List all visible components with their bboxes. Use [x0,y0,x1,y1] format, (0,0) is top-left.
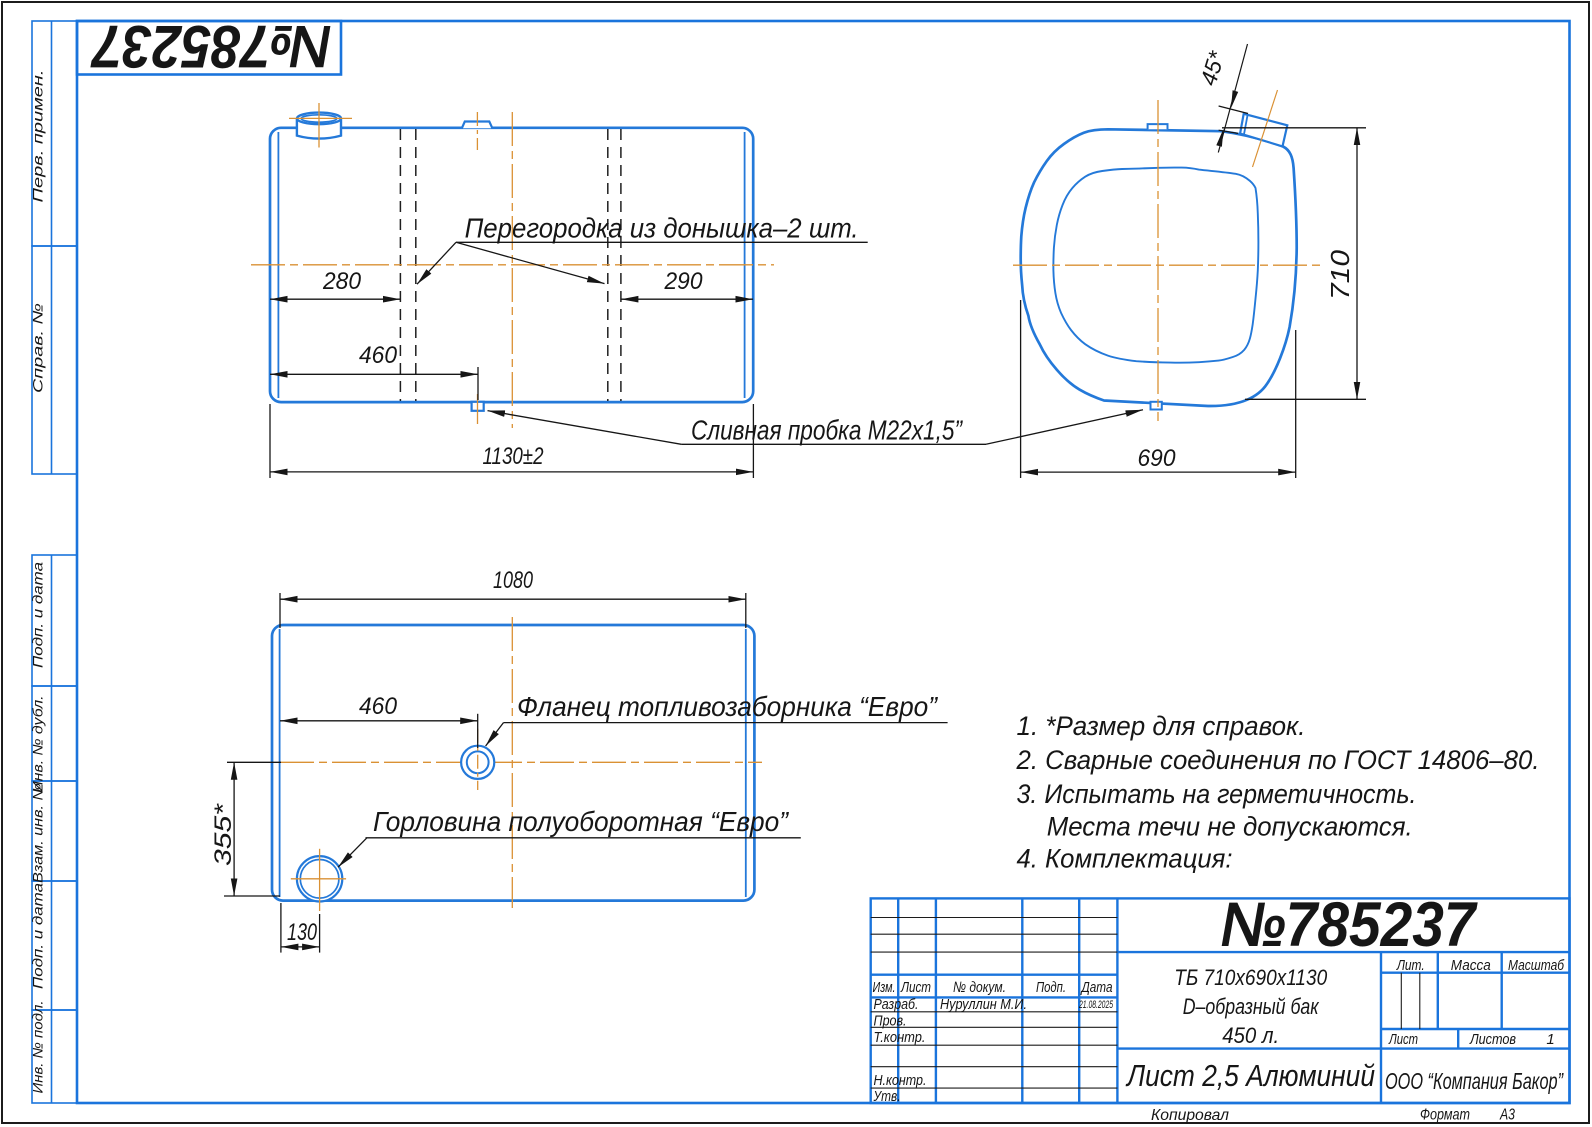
svg-text:Подп. и дата: Подп. и дата [30,883,46,989]
svg-text:21.08.2025: 21.08.2025 [1078,999,1113,1011]
svg-text:Перегородка из донышка–2 шт.: Перегородка из донышка–2 шт. [465,213,859,244]
svg-text:355*: 355* [210,803,237,866]
svg-text:Лист: Лист [900,979,931,996]
svg-text:Т.контр.: Т.контр. [874,1029,926,1046]
svg-text:Подп. и дата: Подп. и дата [30,562,46,668]
svg-text:690: 690 [1138,445,1177,472]
svg-text:130: 130 [287,919,317,946]
svg-text:Дата: Дата [1080,979,1113,996]
svg-text:№785237: №785237 [1221,890,1479,960]
svg-text:1: 1 [1546,1031,1554,1048]
svg-text:Сливная пробка М22х1,5”: Сливная пробка М22х1,5” [691,415,963,446]
svg-text:3. Испытать на герметичность.: 3. Испытать на герметичность. [1017,779,1417,809]
svg-text:Подп.: Подп. [1036,979,1066,996]
svg-text:290: 290 [664,268,704,295]
svg-text:№785237: №785237 [90,13,331,80]
svg-text:А3: А3 [1499,1107,1515,1124]
svg-text:Разраб.: Разраб. [874,996,919,1013]
svg-text:460: 460 [359,693,398,720]
svg-text:Взам. инв. №: Взам. инв. № [30,783,46,883]
svg-text:Пров.: Пров. [874,1013,907,1030]
svg-text:1080: 1080 [493,567,533,594]
svg-text:№ докум.: № докум. [953,979,1006,996]
svg-text:ООО “Компания Бакор”: ООО “Компания Бакор” [1385,1068,1564,1094]
svg-text:Нуруллин М.И.: Нуруллин М.И. [940,996,1027,1013]
svg-text:Фланец топливозаборника “Евро”: Фланец топливозаборника “Евро” [517,691,939,722]
svg-text:Н.контр.: Н.контр. [874,1072,927,1089]
svg-text:Инв. № дубл.: Инв. № дубл. [30,696,46,793]
svg-text:1. *Размер для справок.: 1. *Размер для справок. [1017,711,1306,741]
svg-text:710: 710 [1325,249,1355,300]
svg-text:2. Сварные соединения по ГОСТ: 2. Сварные соединения по ГОСТ 14806–80. [1016,745,1540,775]
svg-text:Справ. №: Справ. № [30,303,46,393]
svg-text:Горловина полуоборотная “Евро”: Горловина полуоборотная “Евро” [373,806,790,837]
svg-text:Лист 2,5 Алюминий: Лист 2,5 Алюминий [1125,1058,1375,1093]
svg-text:Формат: Формат [1420,1107,1470,1124]
svg-text:Утв.: Утв. [873,1088,901,1105]
svg-text:D–образный бак: D–образный бак [1183,994,1320,1019]
svg-text:450 л.: 450 л. [1222,1023,1279,1048]
svg-text:ТБ 710х690х1130: ТБ 710х690х1130 [1174,965,1328,990]
svg-text:Копировал: Копировал [1151,1107,1229,1124]
svg-text:280: 280 [322,268,362,295]
svg-text:Перв. примен.: Перв. примен. [30,70,46,203]
svg-text:460: 460 [359,342,398,369]
svg-text:Места течи не допускаются.: Места течи не допускаются. [1047,812,1413,842]
svg-text:Лист: Лист [1388,1031,1418,1048]
svg-text:1130±2: 1130±2 [483,443,544,470]
svg-text:4. Комплектация:: 4. Комплектация: [1017,844,1233,874]
svg-text:Изм.: Изм. [873,979,896,996]
svg-text:Листов: Листов [1469,1031,1516,1048]
svg-text:Масштаб: Масштаб [1508,957,1564,974]
svg-text:Инв. № подл.: Инв. № подл. [30,1001,46,1094]
